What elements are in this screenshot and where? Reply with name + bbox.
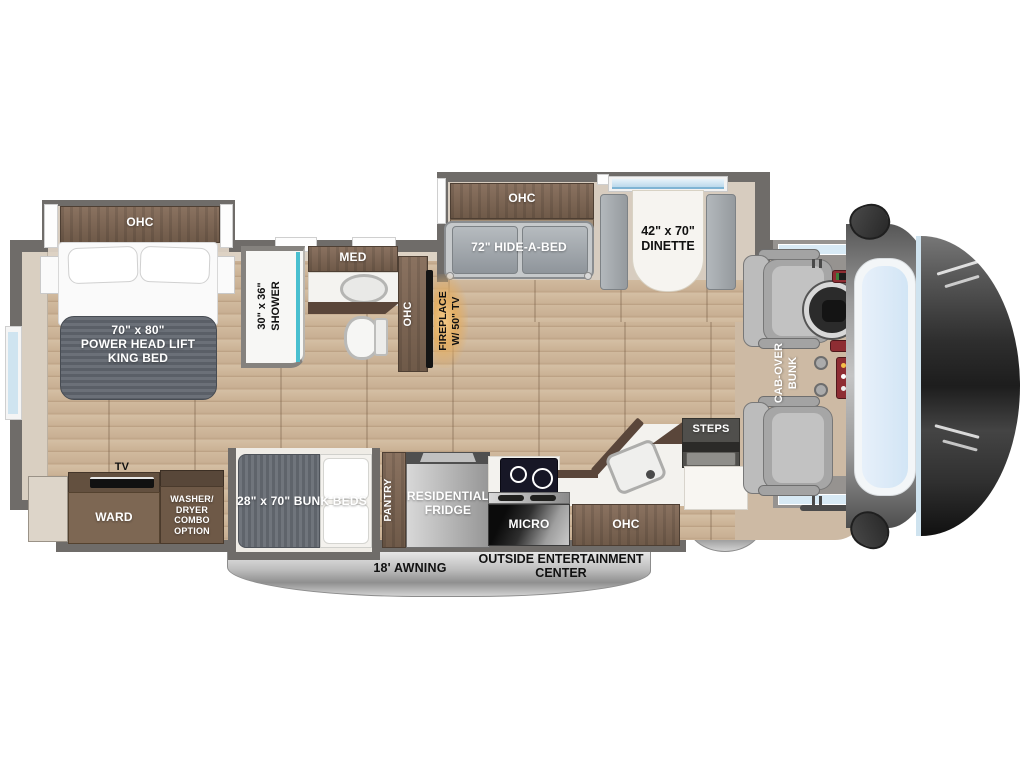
fireplace-label-line1: FIREPLACE — [437, 291, 449, 351]
fireplace-label: FIREPLACE W/ 50" TV — [437, 271, 467, 371]
fridge-label-line2: FRIDGE — [425, 503, 472, 517]
door-handle-marks-bottom — [812, 496, 824, 505]
kitchen-ohc-label: OHC — [572, 518, 680, 531]
bedroom-ohc-label: OHC — [60, 216, 220, 229]
steps-label: STEPS — [682, 423, 740, 435]
king-bed-label: 70" x 80" POWER HEAD LIFT KING BED — [62, 324, 214, 365]
washer-label-line1: WASHER/ — [170, 494, 213, 504]
washer-label-line3: COMBO — [174, 515, 210, 525]
rear-side-cabinet — [28, 476, 68, 542]
shower-label-line1: 30" x 36" — [256, 282, 268, 329]
washer-label-line4: OPTION — [174, 526, 210, 536]
windshield-glass — [862, 266, 908, 488]
bedroom-window-left — [44, 204, 58, 248]
king-bed-label-line1: 70" x 80" — [111, 323, 164, 337]
toilet-tank — [374, 318, 388, 356]
shower-label-line2: SHOWER — [270, 281, 282, 331]
counter-edge-horizontal — [556, 470, 598, 478]
dash-knob-lower — [814, 383, 828, 397]
tv-unit — [90, 477, 154, 488]
steps-tread-dark — [682, 442, 740, 452]
dinette-label-line1: 42" x 70" — [641, 224, 695, 238]
steering-wheel-hub — [822, 300, 846, 322]
hideabed-label: 72" HIDE-A-BED — [444, 241, 594, 254]
microwave-label: MICRO — [488, 518, 570, 531]
bunk-pillow-bottom — [323, 504, 369, 544]
med-cabinet-label: MED — [308, 251, 398, 264]
shower-label: 30" x 36" SHOWER — [256, 256, 288, 356]
passenger-seat-cushion-inner — [772, 413, 824, 483]
entry-door-landing — [684, 466, 748, 510]
fridge-handle — [420, 453, 476, 462]
pantry-label: PANTRY — [383, 460, 405, 540]
tv-label: TV — [100, 461, 144, 473]
fridge-label-line1: RESIDENTIAL — [407, 489, 489, 503]
passenger-seat-armrest-bottom — [758, 485, 820, 496]
door-handle-marks-top — [812, 259, 824, 268]
rear-window-glass — [8, 332, 18, 414]
hideabed-foot-right — [584, 272, 592, 280]
floorplan-canvas: 18' AWNING OUTSIDE ENTERTAINMENT CENTER … — [0, 0, 1024, 768]
nightstand-left — [40, 256, 60, 294]
king-bed-label-line3: KING BED — [108, 351, 168, 365]
vanity-edge — [308, 302, 400, 314]
king-bed-pillow-left — [67, 246, 138, 284]
vanity-sink — [340, 274, 388, 304]
micro-vent-slot-left — [498, 495, 524, 501]
king-bed-pillow-right — [139, 246, 210, 284]
dinette-label: 42" x 70" DINETTE — [620, 224, 716, 254]
cooktop-burner-small — [510, 466, 527, 483]
fridge-label: RESIDENTIAL FRIDGE — [406, 490, 490, 518]
bunk-label: 28" x 70" BUNK BEDS — [232, 495, 372, 508]
washer-label-line2: DRYER — [176, 505, 208, 515]
dinette-label-line2: DINETTE — [641, 239, 694, 253]
entertainment-label: OUTSIDE ENTERTAINMENT CENTER — [478, 552, 644, 581]
cab-over-bunk-label: CAB-OVER BUNK — [773, 333, 803, 413]
shower-glass-accent — [296, 252, 300, 362]
entertainment-label-line1: OUTSIDE ENTERTAINMENT — [478, 552, 643, 566]
king-bed-label-line2: POWER HEAD LIFT — [81, 337, 195, 351]
nightstand-right — [215, 256, 235, 294]
fireplace-label-line2: W/ 50" TV — [450, 297, 462, 346]
living-slide-window-left — [437, 178, 446, 224]
bath-ohc-label: OHC — [402, 284, 424, 344]
dash-knob-upper — [814, 356, 828, 370]
cab-over-bunk-label-line2: BUNK — [787, 357, 799, 390]
awning-label: 18' AWNING — [340, 562, 480, 576]
kitchen-faucet — [646, 470, 655, 479]
bedroom-window-right — [220, 204, 233, 248]
steps-tread-light — [686, 452, 736, 466]
dinette-skylight — [612, 179, 724, 189]
cooktop-burner-large — [532, 468, 553, 489]
cab-over-bunk-label-line1: CAB-OVER — [773, 343, 785, 403]
fireplace-tv-bar — [426, 270, 433, 368]
micro-vent-slot-right — [530, 495, 556, 501]
ward-label: WARD — [68, 511, 160, 524]
washer-label: WASHER/ DRYER COMBO OPTION — [160, 494, 224, 536]
entertainment-label-line2: CENTER — [535, 566, 586, 580]
hideabed-ohc-label: OHC — [450, 192, 594, 205]
